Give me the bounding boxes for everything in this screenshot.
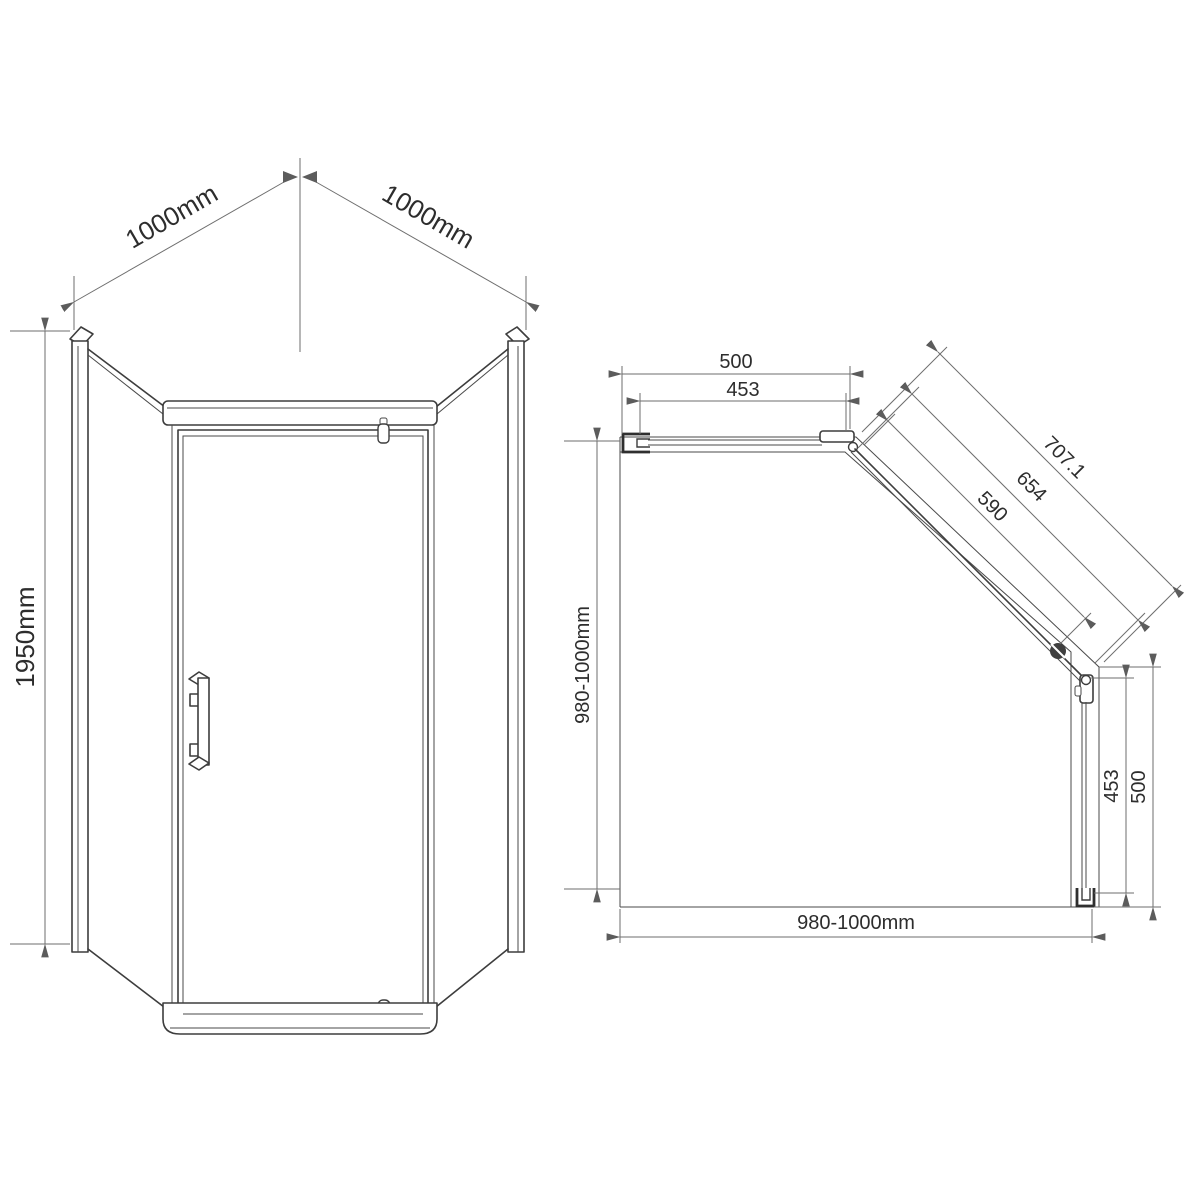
dim-line-707 (938, 352, 1172, 586)
dim-label-1000-right: 1000mm (377, 178, 480, 255)
latch-top-body (378, 424, 389, 443)
right-post-body (508, 341, 524, 952)
ext-590-top (864, 414, 895, 445)
dim-label-980-bottom: 980-1000mm (797, 912, 915, 934)
dim-label-1000-left: 1000mm (120, 178, 223, 255)
ext-590-bottom (1060, 613, 1091, 644)
dim-label-654: 654 (1012, 467, 1051, 506)
ext-654-top (858, 387, 919, 448)
left-bottom-glass-edge (88, 949, 164, 1007)
left-top-glass-edge-inner (88, 355, 163, 414)
dim-plan-bottom: 980-1000mm (620, 909, 1092, 943)
plan-right-glass (1075, 675, 1094, 906)
apex-arrow-left (283, 171, 298, 183)
door-outer-frame (178, 430, 428, 1014)
bottom-rail-band (163, 1003, 437, 1034)
dim-label-453-right: 453 (1101, 769, 1123, 802)
right-bottom-glass-edge (436, 949, 508, 1007)
plan-diagonal-door (851, 449, 1084, 681)
dim-line-654 (912, 394, 1138, 620)
top-rail-band (163, 401, 437, 425)
plan-top-view: 500 453 707.1 654 590 500 (564, 347, 1181, 943)
left-post-body (72, 341, 88, 952)
door-glass-line-1 (855, 449, 1084, 678)
ext-707-bottom (1104, 585, 1181, 662)
dim-height: 1950mm (10, 331, 70, 944)
technical-drawing-page: 1000mm 1000mm 1950mm (0, 0, 1200, 1200)
bottom-rail (163, 1003, 437, 1034)
left-top-glass-edge (88, 349, 165, 407)
dim-label-453-top: 453 (726, 379, 759, 401)
handle-bar (198, 678, 209, 765)
right-top-glass-edge (436, 349, 508, 407)
dim-label-1950: 1950mm (10, 586, 40, 687)
bottom-wall-channel-tab (1082, 888, 1090, 900)
dim-label-707: 707.1 (1039, 432, 1090, 483)
top-pivot-bracket (820, 431, 854, 442)
plan-outline (620, 437, 1099, 907)
dim-label-500-top: 500 (719, 351, 752, 373)
outer-boundary (620, 437, 1099, 907)
dim-plan-right: 500 453 (1090, 667, 1161, 907)
right-top-glass-edge-inner (437, 355, 508, 414)
left-wall-post (70, 327, 93, 952)
dim-top-widths: 1000mm 1000mm (74, 158, 526, 352)
dim-label-500-right: 500 (1128, 770, 1150, 803)
right-glass-latch-tab (1075, 686, 1081, 696)
dim-plan-left: 980-1000mm (564, 441, 620, 889)
apex-arrow-right (302, 171, 317, 183)
ext-654-bottom (1095, 613, 1145, 663)
dim-label-980-left: 980-1000mm (572, 606, 594, 724)
dim-plan-diagonal: 707.1 654 590 (858, 347, 1181, 663)
inner-boundary (620, 452, 1071, 907)
plan-top-glass (623, 431, 858, 452)
shower-door (178, 430, 428, 1014)
shower-enclosure-drawing: 1000mm 1000mm 1950mm (0, 0, 1200, 1200)
dim-label-590: 590 (973, 487, 1012, 526)
bottom-wall-channel (1077, 888, 1094, 906)
top-rail (163, 401, 437, 425)
dim-plan-top: 500 453 (622, 351, 850, 434)
magnetic-latch-top (378, 418, 389, 443)
front-elevation-view: 1000mm 1000mm 1950mm (10, 158, 529, 1034)
ext-707-top (862, 347, 947, 432)
right-wall-post (506, 327, 529, 952)
